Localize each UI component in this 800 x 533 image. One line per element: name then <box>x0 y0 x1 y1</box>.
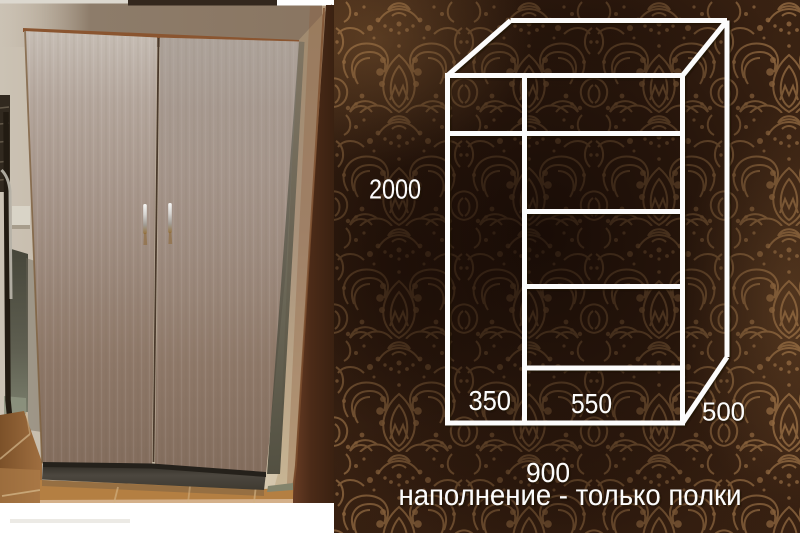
svg-text:550: 550 <box>571 388 612 419</box>
svg-text:2000: 2000 <box>369 174 421 205</box>
svg-text:500: 500 <box>702 397 745 427</box>
svg-text:наполнение - только полки: наполнение - только полки <box>399 479 742 512</box>
svg-text:350: 350 <box>468 385 511 416</box>
